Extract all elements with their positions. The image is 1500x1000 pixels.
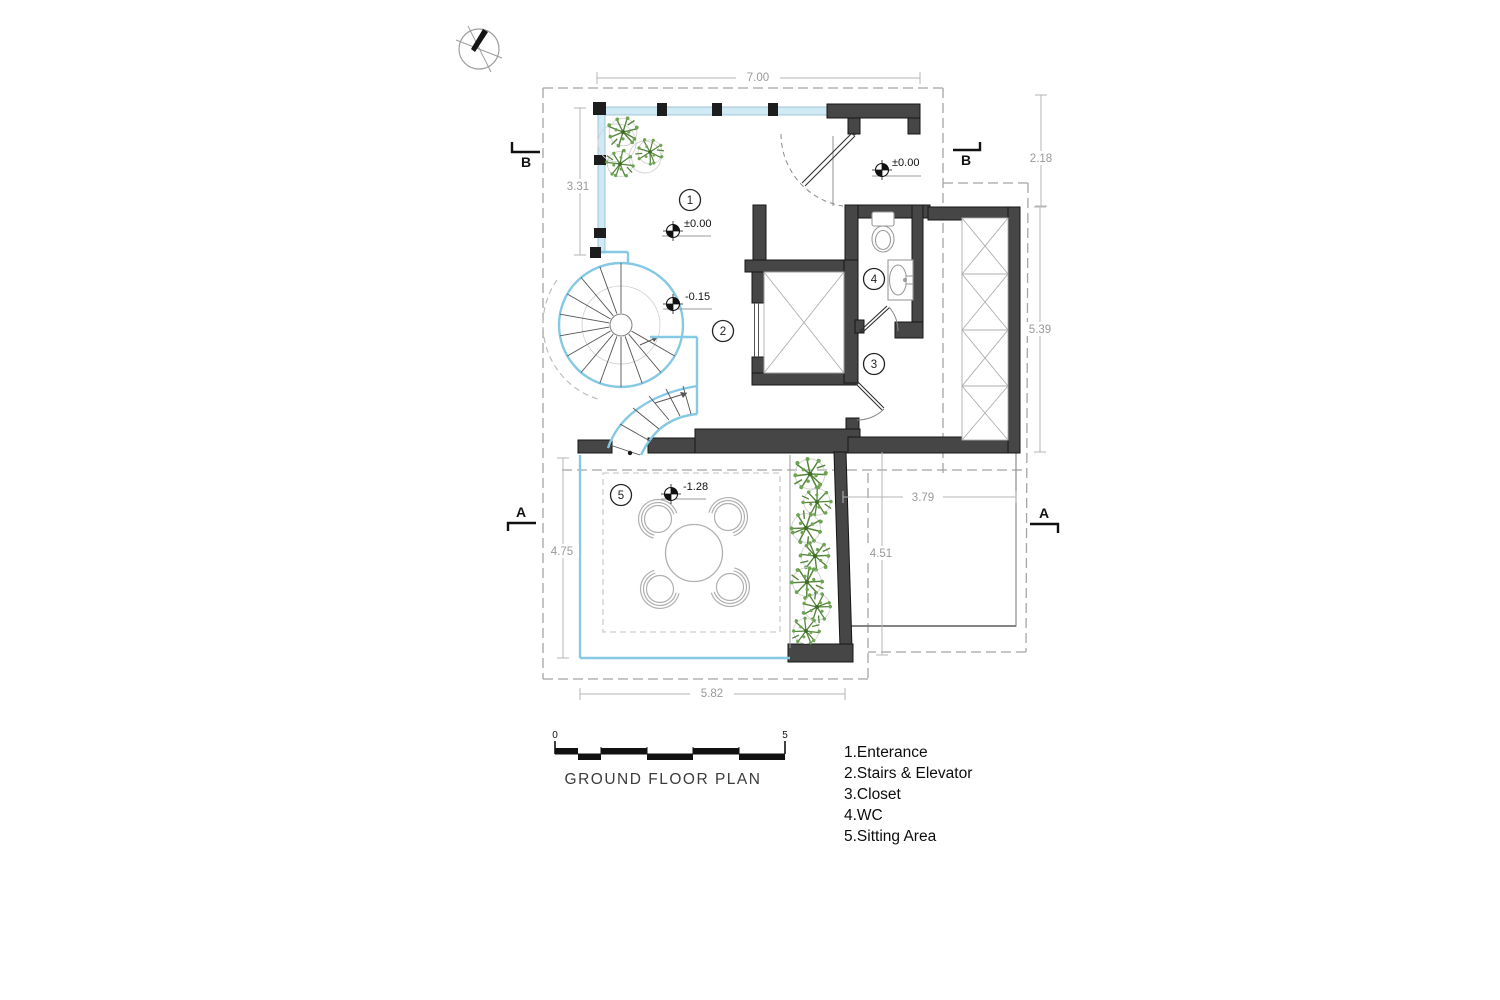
level-value: ±0.00 xyxy=(684,218,711,230)
toilet xyxy=(872,212,894,252)
scale-end: 5 xyxy=(782,730,788,741)
level-value: ±0.00 xyxy=(892,157,919,169)
sink xyxy=(888,260,913,300)
svg-text:5.39: 5.39 xyxy=(1029,324,1051,336)
room-tag-entrance: 1 xyxy=(687,195,693,207)
drawing-title: GROUND FLOOR PLAN xyxy=(565,771,762,788)
chair xyxy=(639,500,677,538)
legend-item: 2.Stairs & Elevator xyxy=(844,765,972,782)
level-marker-sitting: -1.28 xyxy=(661,481,708,504)
section-marker-b-right: B xyxy=(953,142,980,168)
level-marker-entry: ±0.00 xyxy=(872,157,921,180)
legend-item: 1.Enterance xyxy=(844,744,928,761)
section-marker-a-left: A xyxy=(508,504,536,531)
svg-text:B: B xyxy=(521,154,531,170)
wc-door xyxy=(859,306,898,333)
floor-plan-drawing: ±0.00 ±0.00 -0.15 -1.28 1 2 3 4 5 7.00 xyxy=(0,0,1500,1000)
chair xyxy=(709,498,747,536)
svg-text:3.79: 3.79 xyxy=(912,492,934,504)
round-table xyxy=(666,525,723,582)
dimension-bottom-width: 5.82 xyxy=(580,686,845,700)
dimension-top-width: 7.00 xyxy=(597,70,920,84)
terrace-outline xyxy=(843,452,1016,626)
room-tag-sitting: 5 xyxy=(618,490,624,502)
legend-item: 4.WC xyxy=(844,807,883,824)
legend: 1.Enterance 2.Stairs & Elevator 3.Closet… xyxy=(844,744,972,845)
section-marker-b-left: B xyxy=(512,142,540,170)
svg-text:4.75: 4.75 xyxy=(551,546,573,558)
north-arrow-icon xyxy=(456,26,502,72)
scale-start: 0 xyxy=(552,730,558,741)
room-tag-stairs: 2 xyxy=(720,326,726,338)
dimension-terrace-width: 3.79 xyxy=(843,490,1016,504)
level-marker-entrance-room: ±0.00 xyxy=(662,218,711,241)
entry-door xyxy=(781,132,856,206)
level-value: -1.28 xyxy=(683,481,708,493)
dimension-sitting-height: 4.75 xyxy=(545,458,579,658)
room-tag-closet: 3 xyxy=(871,359,877,371)
chair xyxy=(711,568,749,606)
closet-door xyxy=(855,381,884,420)
svg-text:B: B xyxy=(961,152,971,168)
level-value: -0.15 xyxy=(685,291,710,303)
legend-item: 3.Closet xyxy=(844,786,902,803)
svg-text:A: A xyxy=(1039,505,1049,521)
closet-shelving xyxy=(962,218,1008,440)
room-tag-wc: 4 xyxy=(871,274,878,286)
dimension-terrace-height: 4.51 xyxy=(864,452,898,655)
svg-text:5.82: 5.82 xyxy=(701,688,723,700)
chair xyxy=(641,570,679,608)
elevator-shaft xyxy=(755,272,845,373)
svg-text:2.18: 2.18 xyxy=(1030,153,1052,165)
dimension-left-glazing: 3.31 xyxy=(562,108,595,255)
spiral-stair xyxy=(543,263,683,400)
svg-text:4.51: 4.51 xyxy=(870,548,892,560)
svg-text:A: A xyxy=(516,504,526,520)
legend-item: 5.Sitting Area xyxy=(844,828,937,845)
svg-text:3.31: 3.31 xyxy=(567,181,589,193)
floor-plan-page: ±0.00 ±0.00 -0.15 -1.28 1 2 3 4 5 7.00 xyxy=(0,0,1500,1000)
dimension-right-closet: 5.39 xyxy=(1024,207,1057,452)
section-marker-a-right: A xyxy=(1030,505,1058,533)
dimension-right-top: 2.18 xyxy=(1025,95,1058,206)
scale-bar: 0 5 xyxy=(552,730,788,760)
svg-text:7.00: 7.00 xyxy=(747,72,769,84)
